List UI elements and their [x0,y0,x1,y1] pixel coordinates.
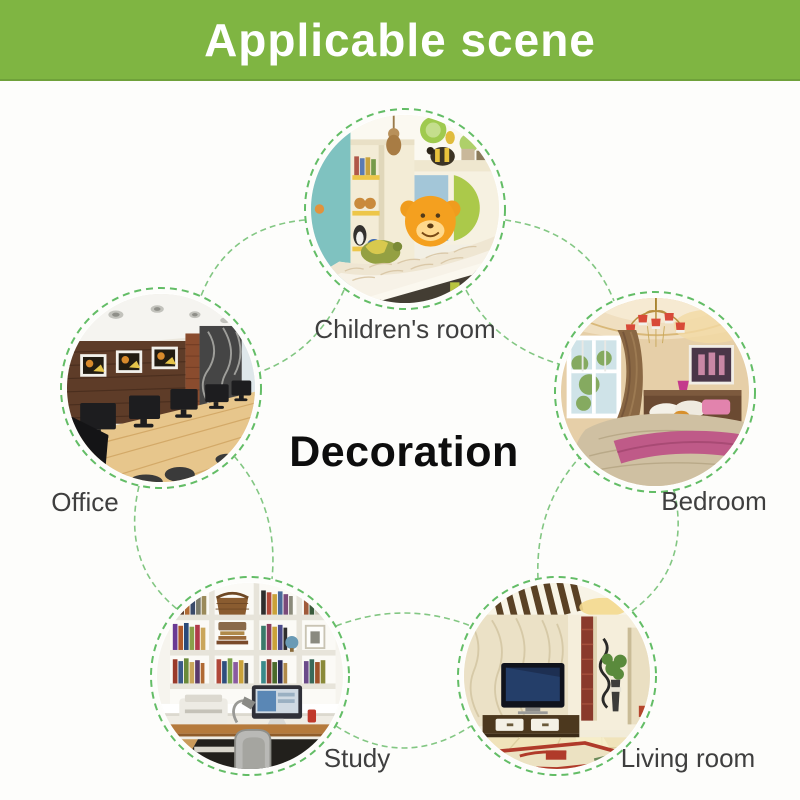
page-title: Applicable scene [204,13,596,67]
office-label: Office [51,487,118,518]
living-room-photo [464,583,650,769]
children-room-photo [311,115,499,303]
page: Applicable scene [0,0,800,800]
office-photo [67,294,255,482]
header-banner: Applicable scene [0,0,800,81]
children-room-label: Children's room [314,314,495,345]
center-title: Decoration [289,428,519,477]
living-room-image [464,583,650,769]
study-photo [157,583,343,769]
bedroom-label: Bedroom [661,486,767,517]
children-room-image [311,115,499,303]
bedroom-photo [561,298,749,486]
living-room-label: Living room [621,743,755,774]
bedroom-image [561,298,749,486]
office-image [67,294,255,482]
study-image [157,583,343,769]
study-label: Study [324,743,391,774]
